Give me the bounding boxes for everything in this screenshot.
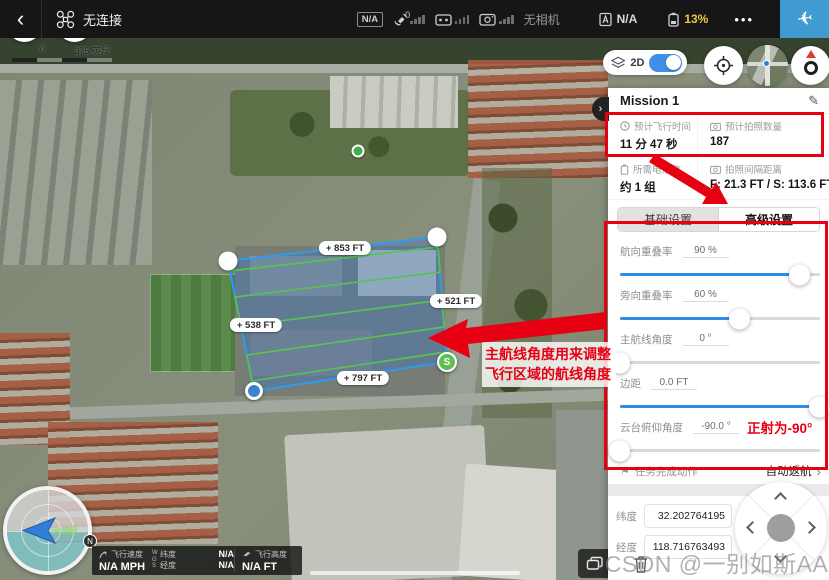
finish-action-label: 任务完成动作	[635, 464, 698, 479]
satellite-count: 0	[405, 10, 410, 20]
camera-icon	[479, 13, 496, 26]
clock-icon	[620, 121, 630, 131]
latitude-label: 纬度	[616, 509, 644, 524]
slider-gimbal-pitch: 云台俯仰角度 -90.0 ° 正射为-90°	[608, 414, 829, 458]
lng-label: 经度	[160, 560, 176, 571]
stat-label: 预计飞行时间	[634, 119, 691, 133]
edit-mission-icon[interactable]: ✎	[808, 93, 819, 109]
drone-icon	[56, 10, 75, 29]
mission-panel: Mission 1 ✎ 预计飞行时间 11 分 47 秒 预计拍照数量 187	[608, 88, 829, 580]
stat-label: 预计拍照数量	[725, 119, 782, 133]
speed-label: 飞行速度	[111, 549, 143, 560]
camera-signal[interactable]	[479, 13, 514, 26]
finish-action-value: 自动返航	[766, 463, 812, 479]
edge-distance-label: + 853 FT	[319, 241, 371, 255]
mission-stats: 预计飞行时间 11 分 47 秒 预计拍照数量 187 所需电池数 约 1 组	[608, 114, 829, 200]
compass-dial	[3, 486, 92, 575]
slider-label: 航向重叠率	[620, 244, 673, 259]
minimap-button[interactable]	[747, 45, 788, 86]
slider-label: 旁向重叠率	[620, 288, 673, 303]
aircraft-ring-icon	[804, 61, 818, 75]
dpad-center-button[interactable]	[767, 514, 795, 542]
slider-margin: 边距 0.0 FT	[608, 370, 829, 414]
map-buildings-top	[330, 76, 458, 128]
2d-toggle[interactable]	[649, 54, 682, 72]
stat-label: 所需电池数	[633, 162, 681, 176]
settings-tabs: 基础设置 高级设置	[617, 207, 820, 232]
latitude-input[interactable]: 32.202764195	[644, 504, 732, 528]
nudge-up-button[interactable]	[774, 492, 787, 505]
slider-thumb[interactable]	[609, 440, 630, 461]
battery-indicator[interactable]: 13%	[667, 12, 708, 27]
stat-battery-needed: 所需电池数 约 1 组	[608, 157, 698, 200]
panel-collapse-handle[interactable]: ›	[592, 97, 609, 121]
stat-photo-count: 预计拍照数量 187	[698, 114, 829, 157]
flight-mode-icon	[598, 12, 613, 27]
interval-icon	[710, 165, 721, 174]
crosshair-icon	[713, 55, 734, 76]
speed-icon	[99, 550, 108, 559]
lat-label: 纬度	[160, 549, 176, 560]
map-sports-field	[150, 274, 238, 372]
gimbal-annotation-note: 正射为-90°	[747, 417, 812, 437]
position-readout: 纬度N/A 经度N/A	[160, 546, 234, 575]
photo-count-icon	[710, 122, 721, 131]
flag-icon: ⚑	[620, 465, 630, 478]
slider-label: 主航线角度	[620, 332, 673, 347]
camera-status-label: 无相机	[524, 11, 560, 28]
satellite-bars-icon	[410, 14, 425, 24]
telemetry-bar: 飞行速度 N/A MPH WGS 纬度N/A 经度N/A 飞行高度 N/A FT	[92, 546, 302, 575]
map-buildings-left	[0, 80, 152, 265]
stat-value: 约 1 组	[620, 179, 691, 195]
stat-photo-interval: 拍照间隔距离 F: 21.3 FT / S: 113.6 FT	[698, 157, 829, 200]
top-status-bar: ‹ 无连接 N/A 0 无相机 N/A	[0, 0, 829, 38]
more-menu-button[interactable]: •••	[718, 12, 770, 27]
map-building	[358, 250, 436, 296]
stat-value: F: 21.3 FT / S: 113.6 FT	[710, 179, 829, 191]
mission-header: Mission 1 ✎	[608, 88, 829, 114]
lng-value: N/A	[219, 560, 235, 571]
battery-icon	[667, 12, 680, 27]
camera-bars-icon	[499, 14, 514, 24]
mission-title: Mission 1	[620, 93, 679, 108]
collapse-chevron-icon: ›	[599, 103, 603, 115]
compass-orientation-button[interactable]	[791, 46, 829, 85]
minimap-position-dot	[763, 60, 770, 67]
map-marker[interactable]	[352, 145, 365, 158]
map-mode-pill: 2D	[603, 50, 687, 75]
map-scale-bar: 0 375 英尺	[12, 44, 112, 62]
flight-mode-value: N/A	[617, 12, 638, 26]
nudge-right-button[interactable]	[803, 521, 816, 534]
tab-advanced-settings[interactable]: 高级设置	[719, 208, 819, 231]
connection-status-label: 无连接	[83, 10, 122, 29]
takeoff-button[interactable]: ✈	[780, 0, 829, 38]
waypoint-nudge-dpad	[735, 482, 827, 574]
map-red-roofs-topright	[468, 60, 608, 178]
scale-start-label: 0	[40, 44, 45, 57]
map-building	[250, 256, 342, 296]
flight-planning-app: S + 853 FT + 521 FT + 538 FT + 797 FT 0 …	[0, 0, 829, 580]
aircraft-heading-arrow	[7, 490, 88, 571]
route-angle-value-field[interactable]: 0 °	[683, 332, 729, 346]
finish-action-row[interactable]: ⚑ 任务完成动作 自动返航 ›	[608, 458, 829, 484]
layers-icon	[611, 56, 625, 70]
satellite-signal[interactable]: 0	[393, 12, 425, 26]
polygon-vertex-topleft[interactable]	[219, 252, 238, 271]
back-button[interactable]: ‹	[0, 0, 42, 38]
flight-mode-indicator[interactable]: N/A	[598, 12, 638, 27]
chevron-right-icon: ›	[817, 464, 821, 479]
stat-value: 187	[710, 136, 829, 148]
nudge-left-button[interactable]	[746, 521, 759, 534]
map-building	[250, 330, 372, 376]
slider-thumb[interactable]	[729, 308, 750, 329]
view-mode-label: 2D	[630, 57, 644, 69]
edge-distance-label: + 538 FT	[230, 318, 282, 332]
takeoff-plane-icon: ✈	[795, 7, 814, 32]
stat-label: 拍照间隔距离	[725, 162, 782, 176]
gimbal-pitch-value-field[interactable]: -90.0 °	[693, 420, 739, 434]
margin-value-field[interactable]: 0.0 FT	[651, 376, 697, 390]
stat-flight-time: 预计飞行时间 11 分 47 秒	[608, 114, 698, 157]
edge-distance-label: + 797 FT	[337, 371, 389, 385]
route-angle-annotation: 主航线角度用来调整飞行区域的航线角度	[482, 342, 616, 387]
tab-basic-settings[interactable]: 基础设置	[618, 208, 719, 231]
remote-controller-icon	[435, 13, 452, 26]
north-triangle-icon	[806, 50, 816, 58]
course-overlap-slider[interactable]	[620, 273, 820, 276]
datum-label: WGS	[152, 546, 160, 575]
altitude-icon	[242, 550, 252, 559]
slider-side-overlap: 旁向重叠率 60 %	[608, 282, 829, 326]
lat-value: N/A	[219, 549, 235, 560]
longitude-label: 经度	[616, 540, 644, 555]
battery-count-icon	[620, 164, 629, 175]
longitude-input[interactable]: 118.716763493	[644, 535, 732, 559]
course-overlap-value-field[interactable]: 90 %	[683, 244, 729, 258]
slider-course-overlap: 航向重叠率 90 %	[608, 238, 829, 282]
slider-thumb[interactable]	[809, 396, 829, 417]
margin-slider[interactable]	[620, 405, 820, 408]
gimbal-pitch-slider[interactable]	[620, 449, 820, 452]
route-start-marker[interactable]: S	[437, 352, 457, 372]
edge-distance-label: + 521 FT	[430, 294, 482, 308]
altitude-value: N/A FT	[242, 561, 287, 573]
home-indicator	[310, 571, 520, 575]
side-overlap-value-field[interactable]: 60 %	[683, 288, 729, 302]
scale-end-label: 375 英尺	[74, 44, 110, 57]
map-layer-switch-button[interactable]	[578, 549, 612, 578]
slider-route-angle: 主航线角度 0 °	[608, 326, 829, 370]
altitude-readout: 飞行高度 N/A FT	[235, 546, 294, 575]
side-overlap-slider[interactable]	[620, 317, 820, 320]
delete-waypoint-button[interactable]	[632, 554, 650, 574]
slider-label: 云台俯仰角度	[620, 420, 683, 435]
remote-controller-signal[interactable]	[435, 13, 470, 26]
gps-mode-badge[interactable]: N/A	[357, 12, 383, 27]
attitude-compass: N	[3, 486, 92, 575]
trash-icon	[632, 554, 650, 574]
map-layers-icon	[586, 556, 604, 571]
polygon-vertex-topright[interactable]	[428, 228, 447, 247]
altitude-label: 飞行高度	[255, 549, 287, 560]
nudge-down-button[interactable]	[774, 550, 787, 563]
slider-thumb[interactable]	[789, 264, 810, 285]
polygon-vertex-selected[interactable]	[245, 382, 263, 400]
stat-value: 11 分 47 秒	[620, 136, 691, 152]
route-angle-slider[interactable]	[620, 361, 820, 364]
slider-label: 边距	[620, 376, 641, 391]
speed-value: N/A MPH	[99, 561, 145, 573]
speed-readout: 飞行速度 N/A MPH	[92, 546, 152, 575]
locate-button[interactable]	[704, 46, 743, 85]
battery-percent: 13%	[684, 12, 708, 26]
rc-bars-icon	[455, 14, 470, 24]
aircraft-connection[interactable]: 无连接	[56, 10, 122, 29]
